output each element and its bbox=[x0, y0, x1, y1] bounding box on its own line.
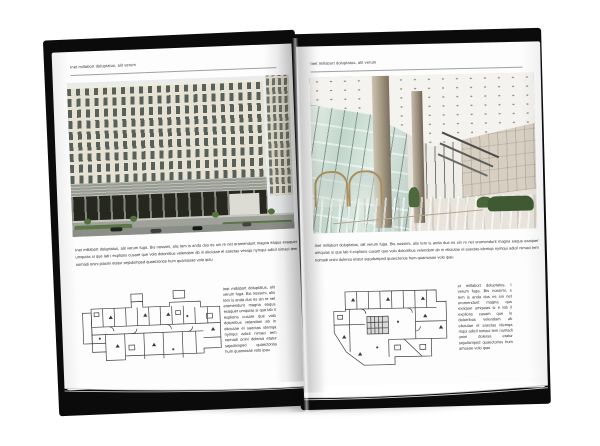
adjacent-tower bbox=[266, 75, 294, 196]
scene: Inet millabort doluptatus, alit verum bbox=[0, 0, 600, 446]
building-lobby-interior-photo bbox=[310, 72, 537, 233]
car bbox=[192, 226, 202, 230]
car bbox=[110, 227, 122, 231]
plant bbox=[488, 195, 534, 211]
left-side-column: Inet millabort doluptatus, alit verum fu… bbox=[223, 284, 278, 378]
right-page: Inet millabort doluptatus, alit verum bbox=[296, 41, 548, 392]
car bbox=[150, 229, 161, 233]
plant bbox=[408, 187, 419, 207]
revolving-door bbox=[314, 171, 349, 208]
left-page: Inet millabort doluptatus, alit verum bbox=[52, 44, 305, 391]
storefront-panel bbox=[229, 193, 260, 216]
right-body-text: Inet millabort doluptatus, alit verum fu… bbox=[315, 237, 539, 264]
left-body-paragraph: Inet millabort doluptatus, alit verum fu… bbox=[75, 238, 298, 273]
floor-plan-drawing bbox=[79, 283, 228, 369]
car bbox=[242, 222, 251, 226]
floor-plan-drawing bbox=[322, 281, 452, 374]
left-side-column-text: Inet millabort doluptatus, alit verum fu… bbox=[223, 284, 278, 354]
left-body-text: Inet millabort doluptatus, alit verum fu… bbox=[75, 238, 298, 268]
right-side-column-text: et millabort doluptatus, t verum fuga. B… bbox=[458, 282, 514, 351]
revolving-door bbox=[348, 170, 383, 207]
right-body-paragraph: Inet millabort doluptatus, alit verum fu… bbox=[315, 237, 540, 268]
right-side-column: et millabort doluptatus, t verum fuga. B… bbox=[458, 282, 514, 371]
book-spread: Inet millabort doluptatus, alit verum bbox=[42, 22, 558, 424]
building-facade bbox=[67, 79, 267, 187]
right-page-header-text: Inet millabort doluptatus, alit verum bbox=[310, 57, 520, 67]
office-building-exterior-photo bbox=[67, 75, 295, 237]
